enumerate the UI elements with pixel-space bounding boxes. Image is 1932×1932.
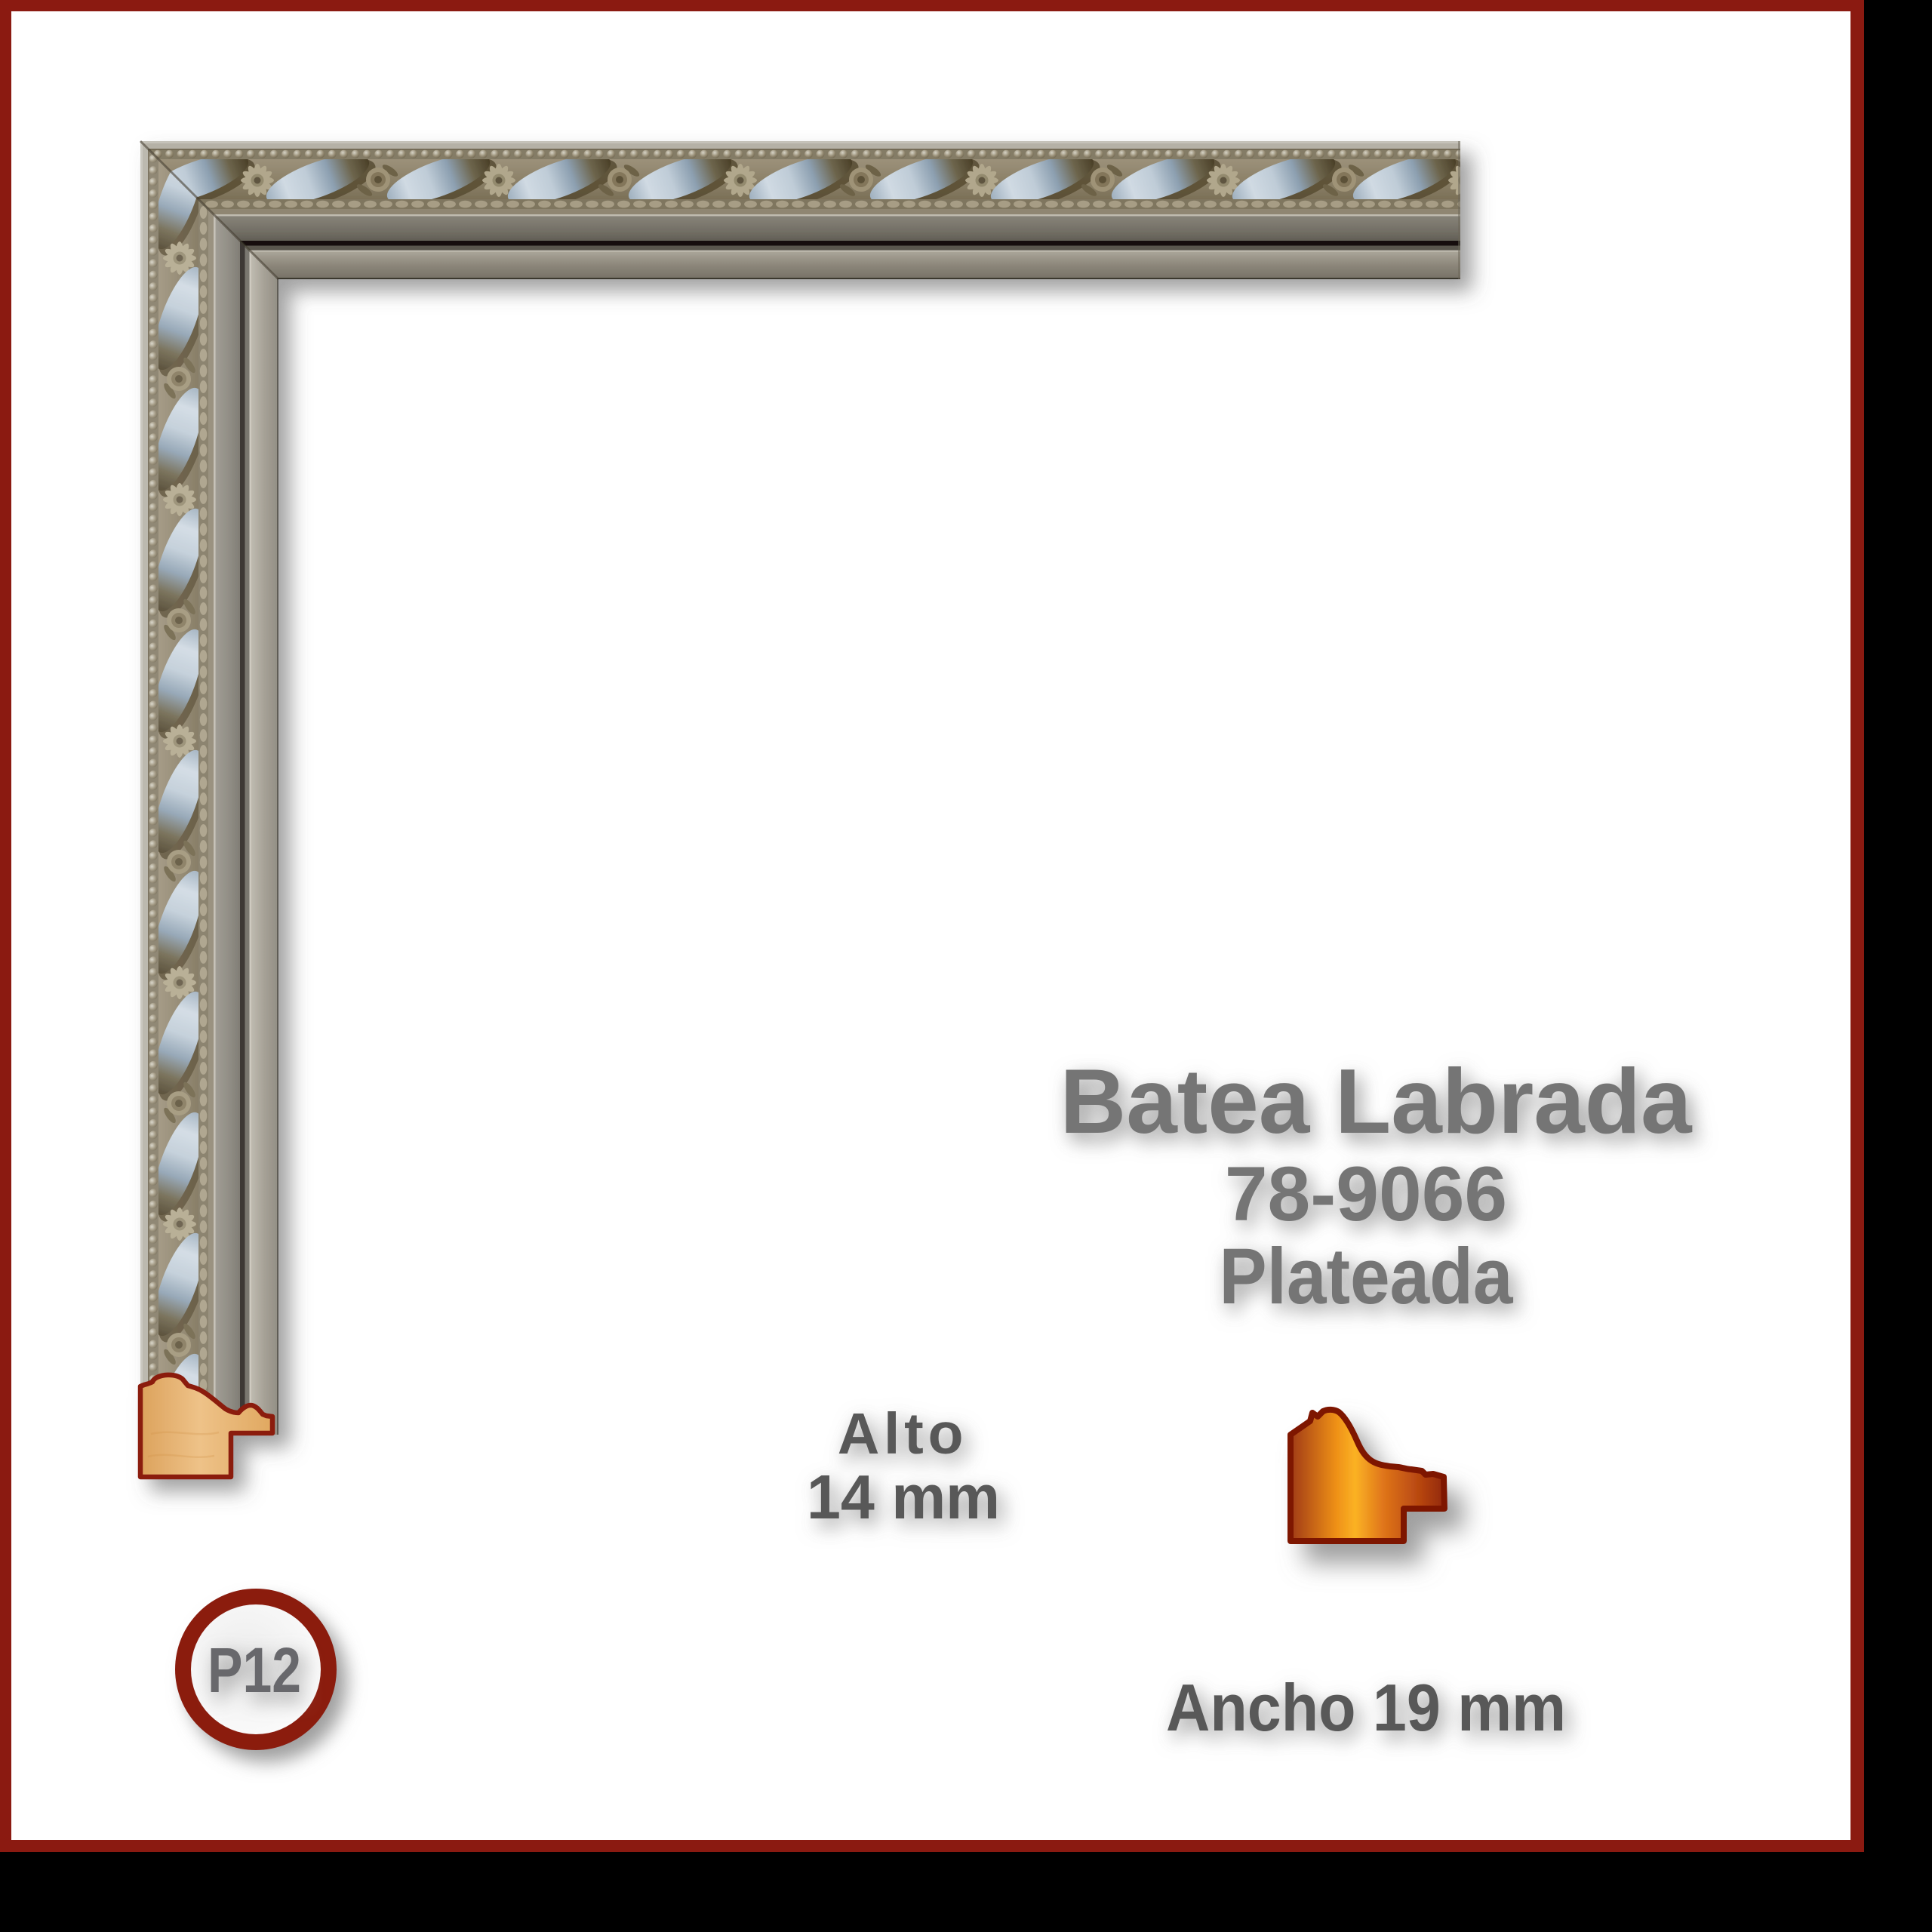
svg-text:Ancho 19 mm: Ancho 19 mm [1166, 1670, 1566, 1745]
svg-text:14 mm: 14 mm [807, 1462, 1000, 1532]
svg-text:Plateada: Plateada [1220, 1232, 1514, 1321]
svg-text:78-9066: 78-9066 [1225, 1151, 1507, 1237]
svg-text:P12: P12 [208, 1635, 301, 1706]
svg-text:Batea Labrada: Batea Labrada [1060, 1050, 1693, 1152]
svg-text:Alto: Alto [838, 1401, 968, 1466]
